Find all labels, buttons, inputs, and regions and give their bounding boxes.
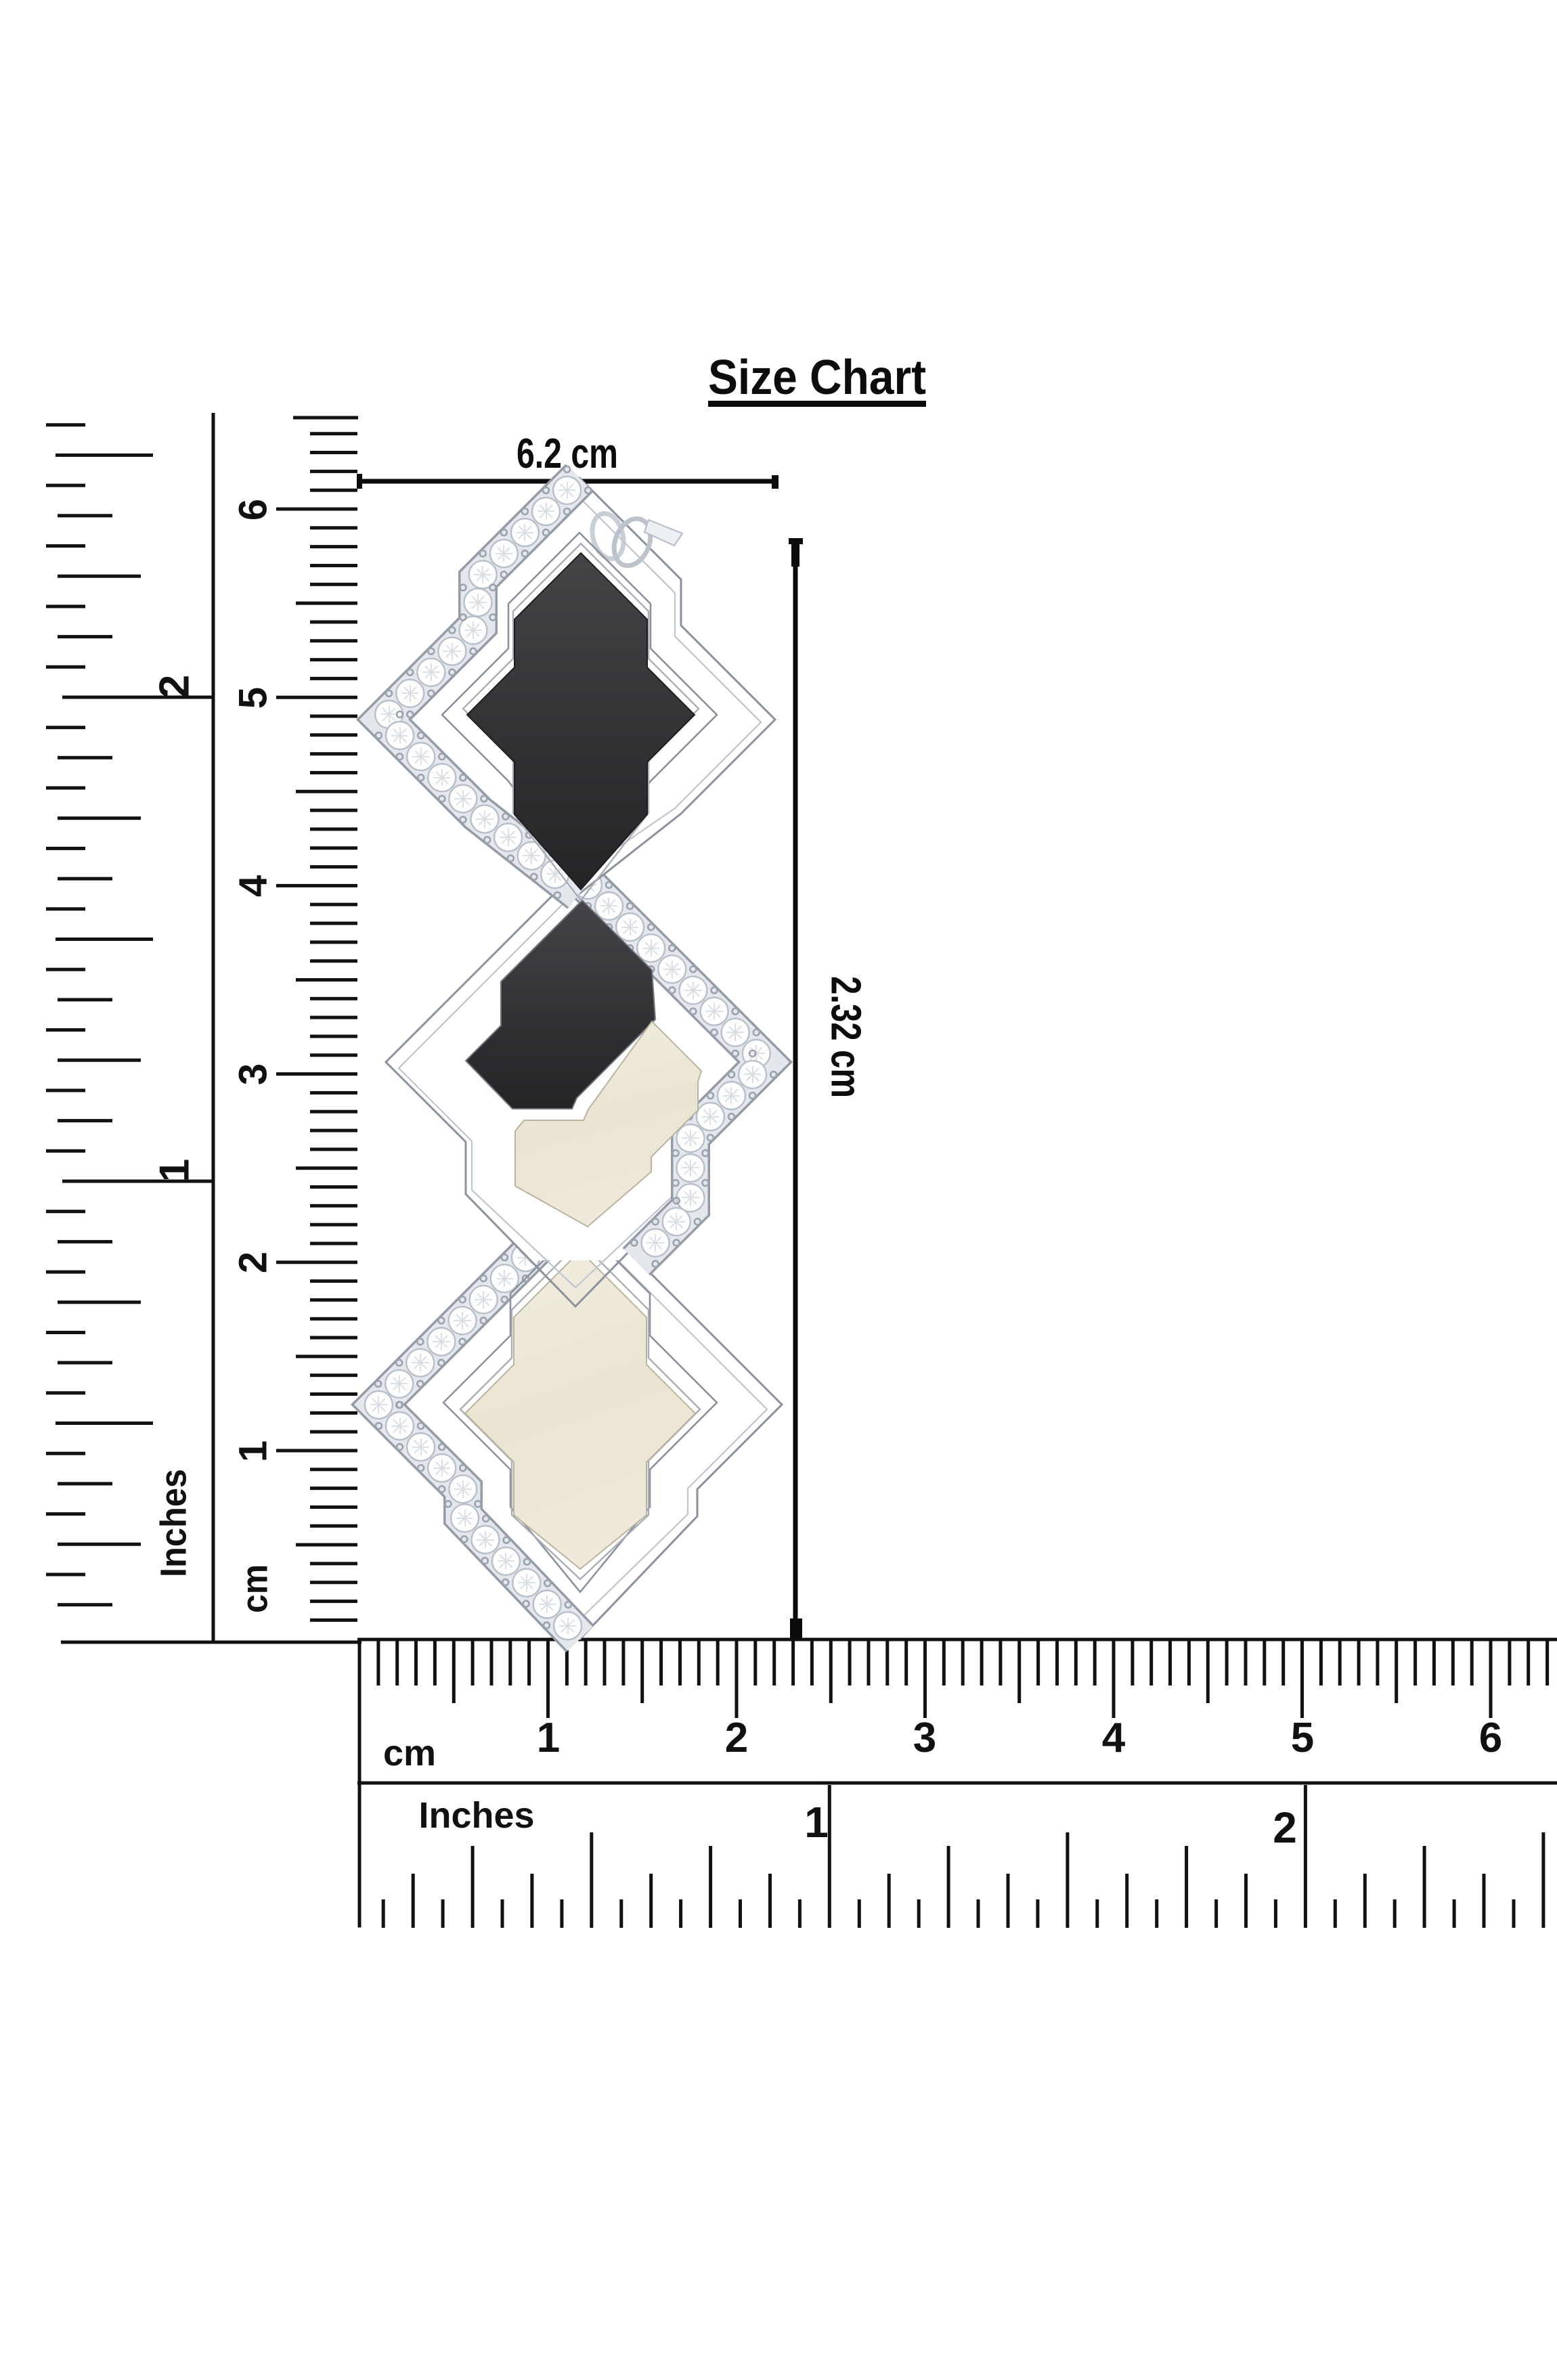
- svg-text:4: 4: [231, 875, 275, 897]
- svg-text:1: 1: [804, 1798, 829, 1847]
- svg-text:2.32 cm: 2.32 cm: [823, 976, 869, 1098]
- svg-text:1: 1: [537, 1715, 560, 1761]
- svg-text:5: 5: [1291, 1715, 1314, 1761]
- svg-text:3: 3: [913, 1715, 936, 1761]
- svg-text:3: 3: [231, 1063, 275, 1085]
- svg-text:cm: cm: [383, 1733, 436, 1773]
- svg-text:4: 4: [1102, 1715, 1126, 1761]
- svg-text:Inches: Inches: [418, 1795, 534, 1836]
- svg-text:2: 2: [1273, 1803, 1297, 1852]
- svg-text:Size Chart: Size Chart: [708, 351, 926, 405]
- svg-text:2: 2: [725, 1715, 748, 1761]
- svg-text:1: 1: [231, 1440, 275, 1462]
- svg-text:2: 2: [151, 675, 198, 698]
- svg-text:cm: cm: [234, 1564, 275, 1613]
- svg-text:Inches: Inches: [153, 1469, 194, 1577]
- svg-text:6: 6: [1479, 1715, 1502, 1761]
- svg-text:6: 6: [231, 499, 275, 521]
- svg-text:1: 1: [151, 1159, 198, 1182]
- svg-text:5: 5: [231, 687, 275, 709]
- svg-text:2: 2: [231, 1252, 275, 1273]
